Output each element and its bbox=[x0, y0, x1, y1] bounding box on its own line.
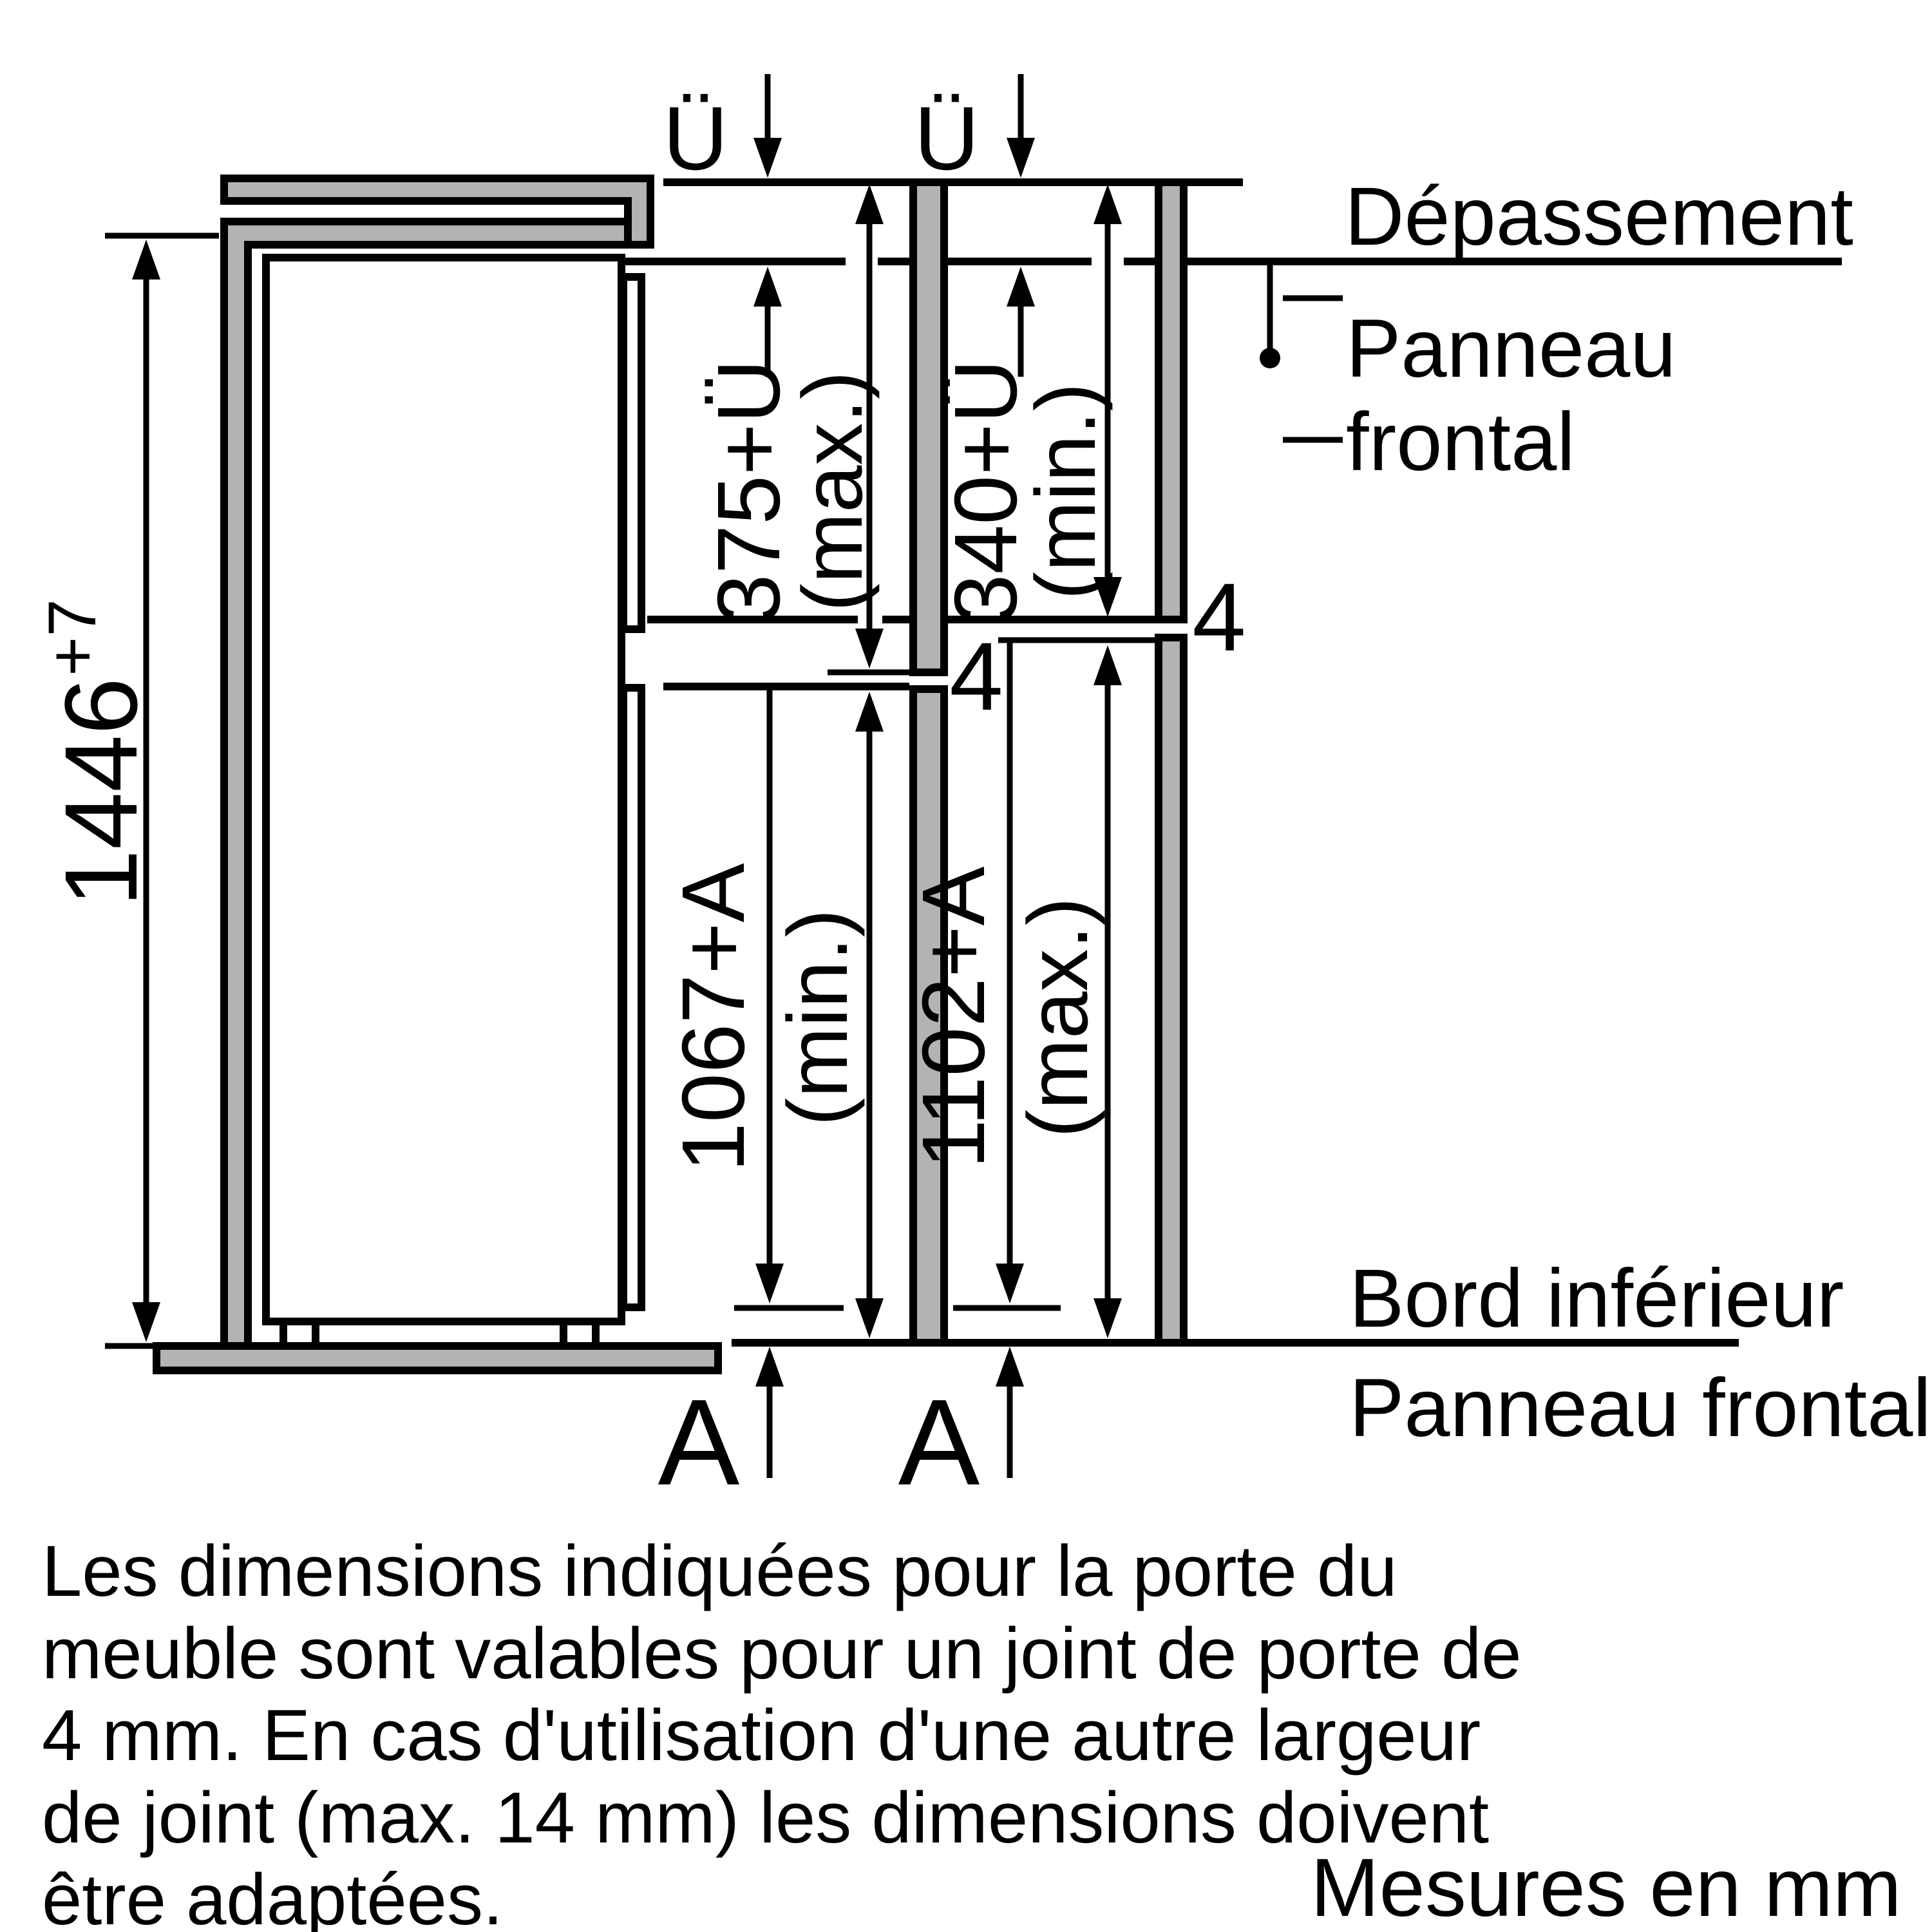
appliance-door-lower bbox=[623, 688, 641, 1307]
adjust-symbol-right: A bbox=[898, 1374, 980, 1511]
lower-door-max-label: 1102+A bbox=[904, 866, 1003, 1168]
upper-door-max-label: 375+Ü bbox=[699, 359, 799, 624]
note-line-4: de joint (max. 14 mm) les dimensions doi… bbox=[42, 1777, 1489, 1858]
dim-niche-height: 1446 +7 bbox=[35, 236, 219, 1346]
appliance-door-upper bbox=[623, 277, 641, 629]
adjust-symbol-left: A bbox=[658, 1374, 740, 1511]
note-line-2: meuble sont valables pour un joint de po… bbox=[42, 1613, 1522, 1694]
note-line-3: 4 mm. En cas d'utilisation d'une autre l… bbox=[42, 1695, 1481, 1776]
overhang-symbol-right: Ü bbox=[914, 88, 979, 189]
appliance-foot-right bbox=[563, 1321, 596, 1346]
appliance bbox=[266, 258, 641, 1346]
upper-door-max-qualifier: (max.) bbox=[785, 371, 880, 612]
lower-door-min-qualifier: (min.) bbox=[770, 909, 865, 1126]
panneau-frontal-bottom-label: Panneau frontal bbox=[1349, 1362, 1931, 1454]
panneau-frontal-top-line1: Panneau bbox=[1346, 303, 1676, 395]
depassement-label: Dépassement bbox=[1345, 171, 1853, 263]
note-paragraph: Les dimensions indiquées pour la porte d… bbox=[42, 1531, 1522, 1932]
dim-adjust-right: A bbox=[898, 1347, 1024, 1511]
lower-door-max-qualifier: (max.) bbox=[1010, 897, 1105, 1138]
lower-door-min-label: 1067+A bbox=[664, 863, 763, 1172]
door-gap-right-label: 4 bbox=[1192, 563, 1245, 671]
niche-height-label: 1446 bbox=[43, 677, 158, 907]
cabinet-floor bbox=[156, 1346, 718, 1370]
dim-upper-door-min: 340+Ü (min.) bbox=[936, 184, 1122, 623]
note-line-1: Les dimensions indiquées pour la porte d… bbox=[42, 1531, 1397, 1611]
leader-dot bbox=[1260, 348, 1280, 368]
callout-bord-inferieur: Bord inférieur Panneau frontal bbox=[1349, 1253, 1931, 1454]
note-line-5: être adaptées. bbox=[42, 1859, 503, 1932]
installation-diagram: 1446 +7 Ü Ü 375+Ü (max.) 340+Ü (min.) 4 … bbox=[0, 0, 1932, 1932]
dim-upper-door-max: 375+Ü (max.) bbox=[699, 184, 884, 668]
appliance-foot-left bbox=[283, 1321, 316, 1346]
dim-overhang-left: Ü bbox=[663, 74, 782, 377]
overhang-symbol-left: Ü bbox=[663, 88, 728, 189]
callout-panneau-frontal-top: Panneau frontal bbox=[1283, 298, 1676, 488]
dim-lower-door-min: 1067+A (min.) bbox=[664, 687, 884, 1338]
niche-height-tolerance: +7 bbox=[35, 599, 110, 676]
furniture-panel-2-lower bbox=[1159, 638, 1184, 1343]
panneau-frontal-top-line2: frontal bbox=[1346, 396, 1575, 488]
furniture-panel-2-upper bbox=[1159, 182, 1184, 620]
unit-note: Mesures en mm bbox=[1311, 1842, 1902, 1932]
door-gap-left-label: 4 bbox=[949, 622, 1003, 730]
upper-door-min-qualifier: (min.) bbox=[1018, 383, 1113, 600]
bord-inferieur-label: Bord inférieur bbox=[1349, 1253, 1844, 1345]
appliance-body bbox=[266, 258, 621, 1321]
manual-page: 1446 +7 Ü Ü 375+Ü (max.) 340+Ü (min.) 4 … bbox=[0, 0, 1932, 1932]
